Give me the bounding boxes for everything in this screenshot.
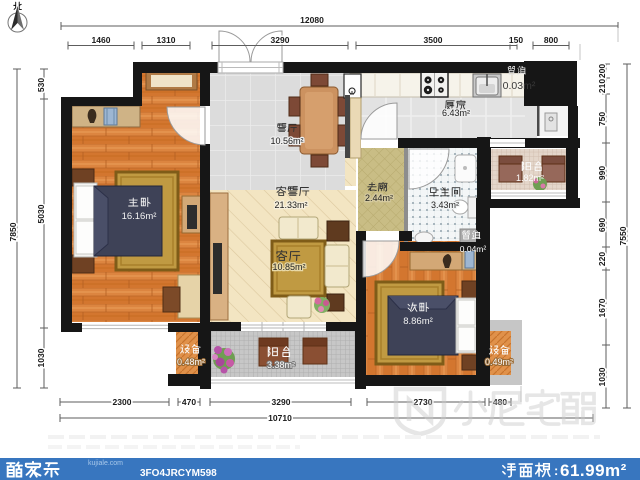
svg-text:1670: 1670	[597, 298, 607, 317]
svg-text:61.99m²: 61.99m²	[560, 461, 627, 480]
svg-text:1030: 1030	[597, 367, 607, 386]
svg-text:0.04m²: 0.04m²	[460, 244, 487, 254]
svg-text:1460: 1460	[92, 35, 111, 45]
svg-text:1030: 1030	[36, 348, 46, 367]
svg-text:8.86m²: 8.86m²	[403, 316, 433, 327]
svg-text:10.56m²: 10.56m²	[270, 136, 303, 146]
svg-text:0.49m²: 0.49m²	[485, 357, 513, 367]
svg-text:3.38m²: 3.38m²	[267, 360, 295, 370]
svg-text:470: 470	[182, 397, 196, 407]
svg-text:150: 150	[509, 35, 523, 45]
svg-text:16.16m²: 16.16m²	[122, 211, 157, 222]
svg-text:750: 750	[597, 112, 607, 126]
svg-text:0.48m²: 0.48m²	[177, 357, 205, 367]
svg-text:3.43m²: 3.43m²	[431, 200, 459, 210]
svg-text:12080: 12080	[300, 15, 324, 25]
svg-text:3FO4JRCYM598: 3FO4JRCYM598	[140, 468, 217, 479]
svg-text:3290: 3290	[271, 35, 290, 45]
svg-text:990: 990	[597, 166, 607, 180]
svg-text:21.33m²: 21.33m²	[274, 200, 307, 210]
svg-text:690: 690	[597, 218, 607, 232]
svg-text:10.85m²: 10.85m²	[272, 262, 305, 272]
svg-text:5030: 5030	[36, 204, 46, 223]
svg-text:210: 210	[597, 79, 607, 93]
svg-text:kujiale.com: kujiale.com	[88, 460, 123, 467]
svg-text:3500: 3500	[424, 35, 443, 45]
svg-text:530: 530	[36, 78, 46, 92]
svg-text:0.03m²: 0.03m²	[503, 80, 536, 92]
svg-text:200: 200	[597, 64, 607, 78]
svg-text:220: 220	[597, 252, 607, 266]
svg-text:7550: 7550	[618, 226, 628, 245]
svg-text:800: 800	[544, 35, 558, 45]
svg-text:6.43m²: 6.43m²	[442, 108, 470, 118]
svg-text:3290: 3290	[272, 397, 291, 407]
svg-text:7850: 7850	[8, 222, 18, 241]
svg-text:10710: 10710	[268, 413, 292, 423]
svg-text:1.82m²: 1.82m²	[516, 173, 544, 183]
svg-text:1310: 1310	[157, 35, 176, 45]
svg-text:2.44m²: 2.44m²	[365, 193, 393, 203]
svg-text:2300: 2300	[113, 397, 132, 407]
svg-text::: :	[554, 463, 558, 478]
